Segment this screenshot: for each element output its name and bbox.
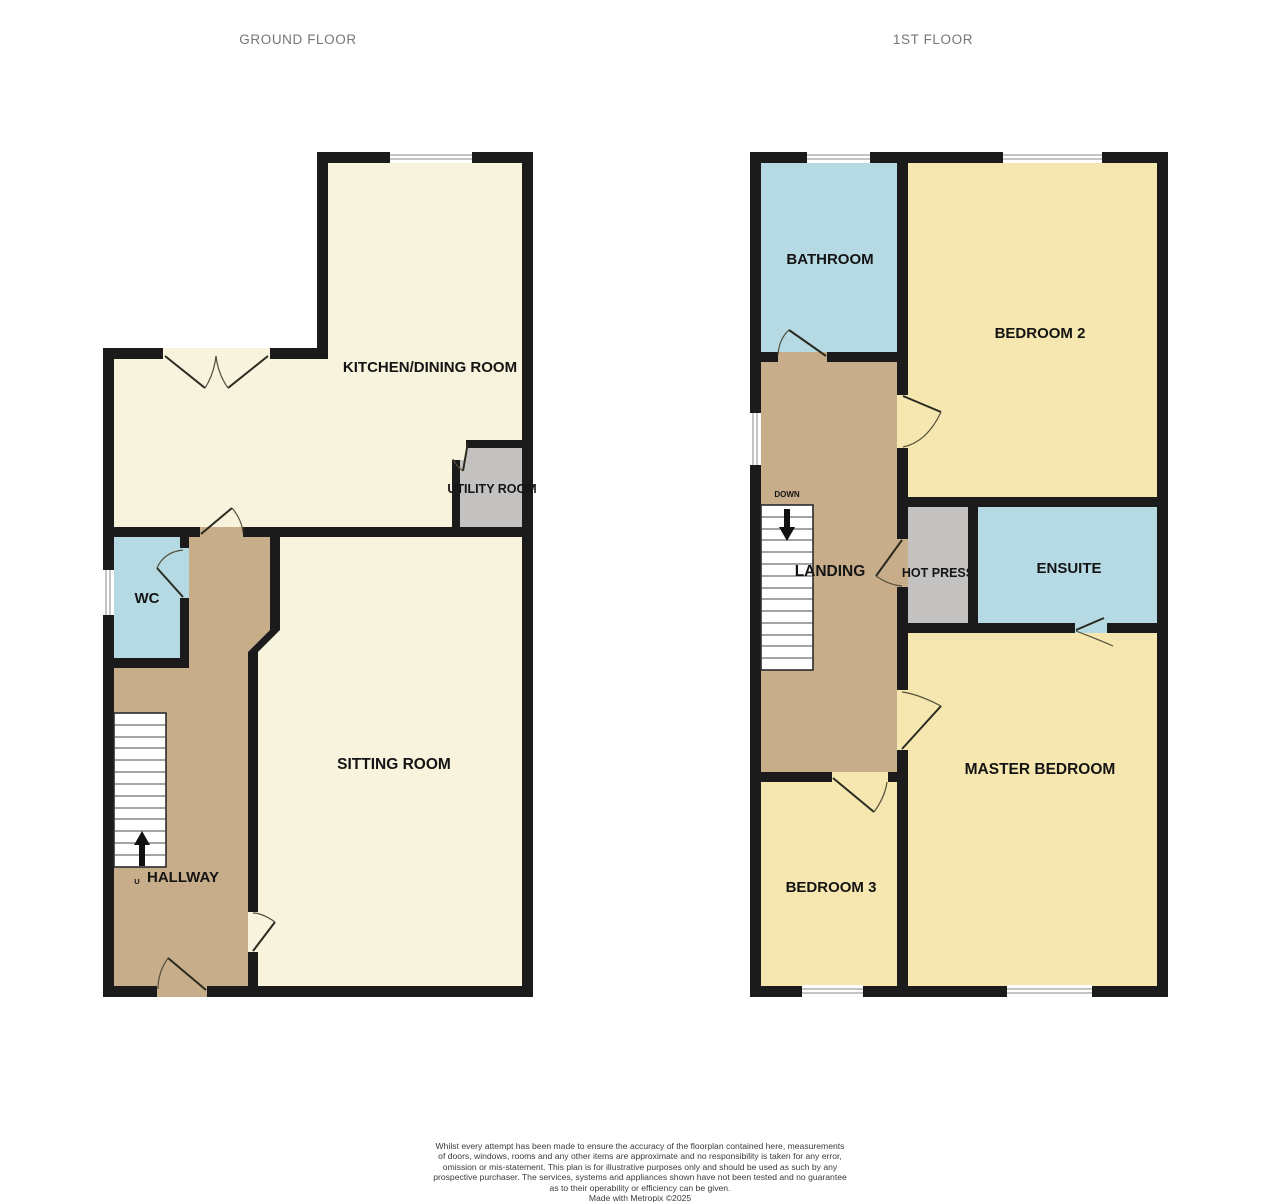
wall-segment <box>466 440 533 448</box>
first-staircase: DOWN <box>761 490 813 670</box>
utility-door-gap <box>452 440 466 460</box>
wall-segment <box>103 615 114 997</box>
bathroom-window <box>807 151 870 163</box>
wc-label: WC <box>135 590 160 607</box>
wall-segment <box>270 537 280 630</box>
floorplan-canvas: GROUND FLOOR 1ST FLOOR <box>0 0 1280 1202</box>
wall-segment <box>317 152 328 359</box>
wall-segment <box>103 527 200 537</box>
floorplan-page: GROUND FLOOR 1ST FLOOR <box>0 0 1280 1202</box>
wall-segment <box>750 772 832 782</box>
hot-press-label: HOT PRESS <box>902 566 974 580</box>
bathroom-door-gap <box>778 352 827 362</box>
wall-segment <box>827 352 908 362</box>
wc-door-gap <box>180 548 189 598</box>
disclaimer-line: of doors, windows, rooms and any other i… <box>0 1151 1280 1161</box>
bedroom3-window <box>802 985 863 997</box>
wall-segment <box>243 527 533 537</box>
bedroom2-door-gap <box>897 395 908 448</box>
bedroom3-label: BEDROOM 3 <box>786 879 877 896</box>
wall-segment <box>897 497 1168 507</box>
wall-segment <box>1092 986 1168 997</box>
kitchen-window <box>390 151 472 163</box>
wall-segment <box>870 152 1003 163</box>
stairs-up-label: U <box>134 877 139 886</box>
bathroom-label: BATHROOM <box>786 251 873 268</box>
wall-segment <box>103 348 163 359</box>
master-door-gap <box>897 690 908 750</box>
wall-segment <box>897 587 908 690</box>
wall-segment <box>897 623 1075 633</box>
wall-segment <box>750 152 761 413</box>
ensuite-label: ENSUITE <box>1036 560 1101 577</box>
wc-window <box>102 570 114 615</box>
first-floor-title: 1ST FLOOR <box>893 32 973 47</box>
bedroom2-window <box>1003 151 1102 163</box>
bedroom3-door-gap <box>832 772 888 782</box>
master-bedroom-label: MASTER BEDROOM <box>965 761 1116 778</box>
wall-segment <box>522 152 533 997</box>
wall-segment <box>180 598 189 658</box>
hallway-label: HALLWAY <box>147 869 219 886</box>
wall-segment <box>863 986 1007 997</box>
hot-press <box>908 507 968 623</box>
wall-segment <box>207 986 533 997</box>
wall-segment <box>1107 623 1168 633</box>
wall-segment <box>1157 152 1168 997</box>
wall-segment <box>750 465 761 997</box>
stairs-down-label: DOWN <box>774 490 800 499</box>
kitchen-dining-room-label: KITCHEN/DINING ROOM <box>343 359 517 376</box>
master-bedroom <box>908 633 1157 986</box>
wall-segment <box>452 460 460 537</box>
utility-room-label: UTILITY ROOM <box>447 482 536 496</box>
master-window <box>1007 985 1092 997</box>
wall-segment <box>897 448 908 539</box>
wall-segment <box>897 750 908 986</box>
wall-segment <box>270 348 317 359</box>
disclaimer-line: as to their operability or efficiency ca… <box>0 1183 1280 1193</box>
landing-label: LANDING <box>795 563 866 580</box>
ground-staircase <box>114 713 166 867</box>
wall-segment <box>888 772 908 782</box>
first-floor-plan: HOT PRESS <box>749 151 1168 997</box>
wall-segment <box>180 537 189 548</box>
wall-segment <box>897 362 908 395</box>
disclaimer-line: Made with Metropix ©2025 <box>0 1193 1280 1202</box>
wall-segment <box>968 507 978 633</box>
wall-segment <box>750 352 778 362</box>
bedroom2-label: BEDROOM 2 <box>995 325 1086 342</box>
ground-floor-title: GROUND FLOOR <box>239 32 356 47</box>
disclaimer-line: Whilst every attempt has been made to en… <box>0 1141 1280 1151</box>
wall-segment <box>248 652 258 912</box>
wall-segment <box>248 952 258 986</box>
front-door-gap <box>157 986 207 997</box>
disclaimer: Whilst every attempt has been made to en… <box>0 1141 1280 1202</box>
wall-segment <box>103 658 189 668</box>
disclaimer-line: prospective purchaser. The services, sys… <box>0 1172 1280 1182</box>
ground-floor-plan: KITCHEN/DINING ROOM UTILITY ROOM WC SITT… <box>102 151 537 997</box>
disclaimer-line: omission or mis-statement. This plan is … <box>0 1162 1280 1172</box>
landing-window <box>749 413 761 465</box>
wall-segment <box>897 163 908 362</box>
sitting-room-label: SITTING ROOM <box>337 756 451 773</box>
